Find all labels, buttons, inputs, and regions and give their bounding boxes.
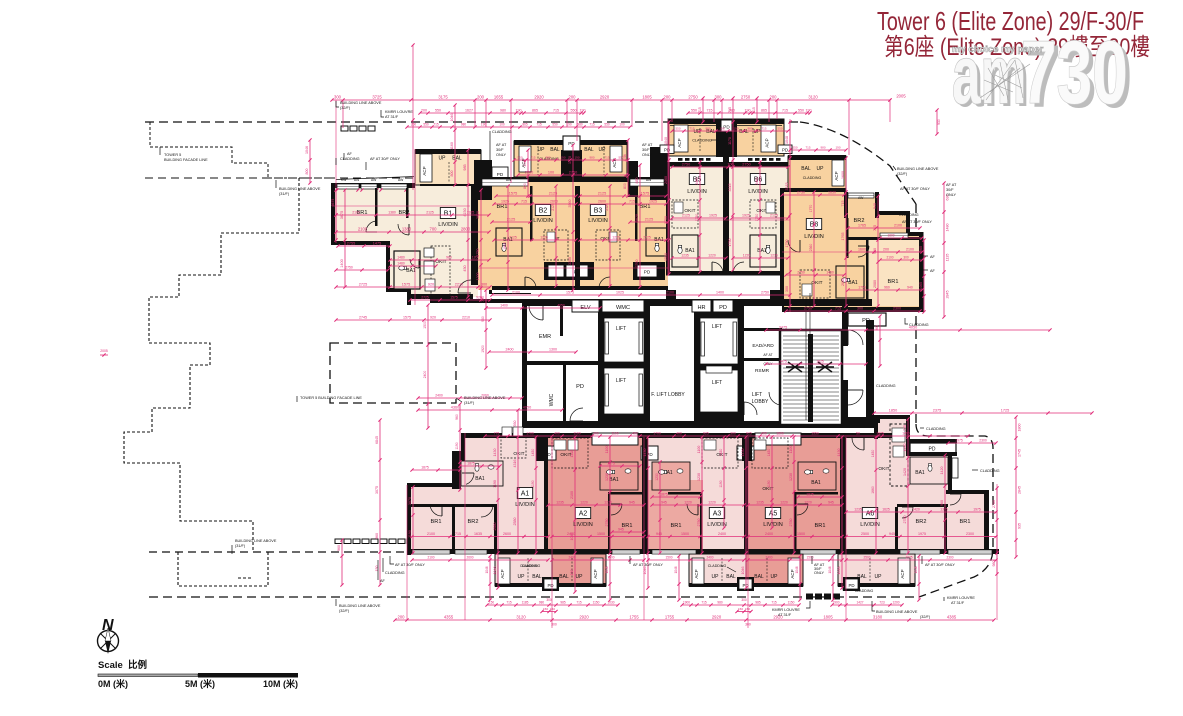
svg-text:2750: 2750 [797, 271, 805, 275]
svg-text:150: 150 [738, 607, 743, 611]
svg-text:1925: 1925 [503, 242, 507, 250]
svg-text:700: 700 [430, 227, 438, 232]
svg-text:(31/F): (31/F) [279, 192, 290, 196]
svg-text:1230: 1230 [789, 473, 793, 481]
svg-text:1925: 1925 [709, 214, 717, 218]
svg-text:比例: 比例 [128, 659, 147, 671]
svg-text:AF AT: AF AT [642, 143, 653, 147]
svg-text:2125: 2125 [598, 192, 606, 196]
svg-text:2125: 2125 [605, 203, 609, 211]
svg-text:1170: 1170 [728, 137, 732, 145]
svg-text:BA1: BA1 [757, 248, 767, 254]
svg-text:1575: 1575 [450, 296, 458, 300]
svg-text:960: 960 [884, 286, 890, 290]
svg-text:2400: 2400 [435, 394, 443, 398]
svg-text:4316: 4316 [513, 460, 517, 468]
svg-text:2750: 2750 [345, 266, 353, 270]
svg-text:A1: A1 [521, 491, 530, 498]
svg-text:AF AT 30/F ONLY: AF AT 30/F ONLY [633, 563, 663, 567]
svg-text:550: 550 [552, 123, 558, 127]
svg-text:550: 550 [691, 109, 697, 113]
svg-text:2500: 2500 [863, 556, 870, 560]
svg-text:3075: 3075 [375, 486, 379, 494]
svg-text:2920: 2920 [534, 95, 544, 100]
svg-text:1430: 1430 [493, 449, 497, 457]
svg-text:CLADDING: CLADDING [708, 564, 727, 568]
svg-text:300: 300 [857, 307, 863, 311]
svg-text:800: 800 [450, 171, 454, 177]
svg-text:WMC: WMC [549, 393, 555, 406]
svg-text:1235: 1235 [556, 501, 564, 505]
svg-text:1040: 1040 [664, 137, 668, 145]
svg-text:1135: 1135 [946, 254, 950, 262]
svg-text:1420: 1420 [912, 508, 920, 512]
svg-text:1230: 1230 [697, 473, 701, 481]
svg-text:BA1: BA1 [811, 480, 821, 486]
svg-text:AF AT 30/F ONLY: AF AT 30/F ONLY [902, 220, 932, 224]
svg-text:OKIT: OKIT [811, 280, 822, 286]
svg-text:800: 800 [623, 183, 627, 189]
svg-text:3315: 3315 [728, 184, 732, 192]
svg-text:2125: 2125 [645, 218, 653, 222]
svg-text:715: 715 [903, 425, 907, 431]
svg-text:BUILDING FACADE LINE: BUILDING FACADE LINE [164, 158, 208, 162]
svg-text:715: 715 [771, 601, 777, 605]
svg-text:UP: UP [875, 574, 883, 580]
svg-text:775: 775 [494, 432, 500, 436]
svg-text:1400: 1400 [716, 291, 724, 295]
svg-text:AF: AF [930, 269, 936, 273]
svg-text:KW: KW [341, 178, 347, 182]
svg-text:2300: 2300 [979, 439, 987, 443]
svg-text:150: 150 [550, 607, 555, 611]
svg-text:940: 940 [873, 203, 877, 209]
svg-text:925: 925 [746, 432, 752, 436]
svg-text:Scale: Scale [98, 660, 123, 671]
svg-text:BA1: BA1 [475, 476, 485, 482]
svg-text:1635: 1635 [474, 532, 482, 536]
svg-text:1765: 1765 [858, 286, 866, 290]
svg-text:PD: PD [576, 384, 584, 390]
svg-text:2500: 2500 [861, 532, 869, 536]
svg-text:2750: 2750 [804, 307, 812, 311]
svg-text:980: 980 [461, 123, 467, 127]
svg-text:BA1: BA1 [609, 477, 619, 483]
svg-text:980: 980 [589, 156, 594, 160]
svg-text:2755: 2755 [347, 242, 355, 246]
svg-text:715: 715 [701, 601, 707, 605]
svg-text:ACP: ACP [422, 166, 427, 175]
svg-text:300: 300 [334, 95, 342, 100]
svg-text:1875: 1875 [806, 493, 814, 497]
svg-text:200: 200 [421, 109, 427, 113]
svg-text:0M (米): 0M (米) [98, 678, 128, 689]
svg-text:A5: A5 [769, 511, 778, 518]
svg-text:CLADDING: CLADDING [803, 176, 822, 180]
svg-text:2780: 2780 [789, 519, 793, 527]
svg-text:1765: 1765 [841, 233, 845, 241]
svg-text:1220: 1220 [780, 501, 788, 505]
svg-text:(31/F): (31/F) [464, 401, 475, 405]
svg-text:715: 715 [536, 123, 542, 127]
svg-text:715: 715 [689, 127, 694, 131]
svg-text:1790: 1790 [785, 240, 789, 248]
svg-text:945: 945 [656, 532, 662, 536]
svg-text:2375: 2375 [933, 409, 941, 413]
svg-text:1046: 1046 [741, 567, 745, 575]
svg-text:AW: AW [506, 178, 512, 182]
svg-text:1100: 1100 [605, 446, 609, 454]
svg-text:AW: AW [398, 178, 404, 182]
svg-text:1048: 1048 [785, 136, 789, 144]
svg-text:1600: 1600 [841, 171, 845, 179]
svg-text:UP: UP [538, 147, 546, 153]
svg-text:5M (米): 5M (米) [185, 678, 215, 689]
svg-text:1430: 1430 [837, 449, 841, 457]
svg-text:ACP: ACP [834, 171, 839, 180]
svg-text:1755: 1755 [665, 615, 675, 620]
svg-text:3475: 3475 [779, 326, 787, 330]
svg-text:1745: 1745 [1018, 449, 1022, 457]
svg-text:200: 200 [477, 95, 485, 100]
svg-text:3300: 3300 [568, 257, 572, 265]
svg-text:3120: 3120 [808, 95, 818, 100]
svg-text:BAL: BAL [550, 147, 560, 153]
svg-text:300: 300 [903, 256, 909, 260]
svg-text:2400: 2400 [718, 532, 726, 536]
svg-text:1150: 1150 [593, 601, 600, 605]
svg-text:550: 550 [618, 156, 623, 160]
svg-text:980: 980 [705, 127, 710, 131]
svg-text:1100: 1100 [573, 432, 580, 436]
svg-text:1750: 1750 [664, 216, 668, 224]
svg-text:945: 945 [828, 501, 834, 505]
svg-text:CLADDING: CLADDING [692, 139, 712, 143]
svg-text:1800: 1800 [1018, 424, 1022, 432]
svg-text:1400: 1400 [340, 259, 344, 267]
svg-text:2100: 2100 [886, 256, 893, 260]
svg-text:(32/F): (32/F) [339, 609, 350, 613]
svg-text:OKIT: OKIT [878, 466, 889, 472]
svg-text:6845: 6845 [375, 436, 379, 444]
svg-text:BAL: BAL [754, 574, 764, 580]
svg-text:2005: 2005 [100, 349, 108, 353]
svg-text:UP: UP [439, 156, 447, 162]
svg-text:1700: 1700 [653, 432, 661, 436]
svg-text:730: 730 [1021, 24, 1128, 123]
svg-text:1220: 1220 [580, 501, 588, 505]
svg-text:CLADDING: CLADDING [980, 469, 1000, 473]
svg-text:1500: 1500 [681, 532, 689, 536]
svg-text:1490: 1490 [902, 432, 910, 436]
svg-text:1575: 1575 [403, 316, 411, 320]
svg-text:190: 190 [733, 127, 738, 131]
svg-text:ONLY: ONLY [496, 153, 507, 157]
svg-text:2080: 2080 [873, 280, 877, 288]
svg-text:2750: 2750 [742, 163, 750, 167]
svg-text:LIFT: LIFT [616, 378, 626, 384]
svg-text:2400: 2400 [567, 532, 575, 536]
svg-text:2210: 2210 [462, 316, 470, 320]
svg-text:300: 300 [741, 598, 747, 602]
svg-text:800: 800 [523, 183, 527, 189]
svg-text:3725: 3725 [372, 95, 382, 100]
svg-text:960: 960 [481, 316, 485, 322]
svg-text:1500: 1500 [597, 532, 605, 536]
svg-text:BA1: BA1 [406, 268, 416, 274]
svg-text:1900: 1900 [832, 601, 839, 605]
svg-text:LIV/DIN: LIV/DIN [687, 189, 707, 195]
svg-text:1850: 1850 [889, 409, 897, 413]
svg-text:1550: 1550 [811, 432, 819, 436]
svg-text:4050: 4050 [557, 304, 565, 308]
svg-text:(32/F): (32/F) [920, 615, 931, 619]
svg-text:1046: 1046 [305, 146, 309, 154]
svg-text:4050: 4050 [523, 406, 531, 410]
svg-text:1800: 1800 [776, 432, 784, 436]
svg-text:2600: 2600 [466, 556, 473, 560]
svg-text:2745: 2745 [359, 316, 367, 320]
svg-text:WMC: WMC [616, 305, 630, 311]
svg-text:1975: 1975 [918, 532, 926, 536]
svg-text:BR1: BR1 [815, 523, 826, 529]
svg-text:980: 980 [717, 601, 723, 605]
svg-text:1190: 1190 [531, 480, 535, 487]
svg-text:865: 865 [522, 123, 528, 127]
svg-text:1630: 1630 [828, 191, 836, 195]
svg-text:1200: 1200 [472, 256, 480, 260]
svg-text:100: 100 [548, 171, 554, 175]
svg-text:B3: B3 [594, 208, 603, 215]
svg-text:BUILDING LINE ABOVE: BUILDING LINE ABOVE [464, 396, 506, 400]
svg-text:920: 920 [430, 316, 436, 320]
svg-text:1920: 1920 [481, 345, 485, 353]
svg-text:980: 980 [992, 561, 996, 567]
svg-text:1046: 1046 [450, 114, 454, 122]
svg-text:A2: A2 [579, 511, 588, 518]
svg-text:AT 31/F: AT 31/F [951, 601, 965, 605]
svg-text:F. LIFT LOBBY: F. LIFT LOBBY [651, 392, 685, 398]
svg-text:2125: 2125 [643, 236, 651, 240]
svg-text:BAL: BAL [452, 156, 462, 162]
svg-text:1430: 1430 [767, 449, 771, 457]
svg-text:BUILDING LINE ABOVE: BUILDING LINE ABOVE [340, 101, 382, 105]
svg-text:1575: 1575 [641, 192, 649, 196]
svg-text:2210: 2210 [455, 283, 463, 287]
svg-text:190: 190 [560, 156, 565, 160]
svg-text:2750: 2750 [688, 95, 698, 100]
svg-text:LIV/DIN: LIV/DIN [438, 222, 458, 228]
svg-text:2100: 2100 [427, 556, 434, 560]
svg-text:1430: 1430 [531, 449, 535, 457]
svg-text:CLADDING: CLADDING [899, 213, 919, 217]
svg-text:550: 550 [604, 123, 610, 127]
svg-text:2750: 2750 [525, 171, 533, 175]
svg-text:300: 300 [546, 598, 552, 602]
svg-text:1046: 1046 [485, 566, 489, 573]
svg-text:2005: 2005 [896, 94, 906, 99]
svg-text:1046: 1046 [795, 566, 799, 573]
svg-text:ACP: ACP [765, 138, 770, 147]
svg-text:715: 715 [752, 107, 756, 113]
svg-text:865: 865 [532, 109, 538, 113]
svg-text:2600: 2600 [550, 200, 558, 204]
svg-text:1300: 1300 [549, 348, 557, 352]
svg-text:10M (米): 10M (米) [263, 678, 298, 689]
svg-text:1235: 1235 [756, 501, 764, 505]
svg-text:1627: 1627 [465, 109, 473, 113]
svg-text:980: 980 [747, 127, 752, 131]
svg-text:AF: AF [347, 152, 353, 156]
svg-text:190: 190 [806, 109, 812, 113]
svg-text:(31/F): (31/F) [235, 544, 246, 548]
svg-text:1230: 1230 [903, 444, 907, 452]
svg-text:B2: B2 [539, 208, 548, 215]
svg-text:1500: 1500 [665, 556, 672, 560]
svg-text:550: 550 [792, 146, 797, 150]
svg-text:BUILDING LINE ABOVE: BUILDING LINE ABOVE [279, 187, 321, 191]
svg-text:3180: 3180 [873, 615, 883, 620]
svg-text:1100: 1100 [697, 446, 701, 454]
svg-text:1400: 1400 [500, 304, 508, 308]
svg-text:1430: 1430 [741, 449, 745, 457]
svg-text:1770: 1770 [809, 205, 813, 213]
svg-text:980: 980 [820, 146, 825, 150]
svg-text:1875: 1875 [421, 466, 429, 470]
svg-text:1046: 1046 [828, 566, 832, 573]
svg-text:2100: 2100 [427, 532, 435, 536]
svg-text:RSMR: RSMR [755, 368, 770, 374]
svg-text:3475: 3475 [779, 360, 787, 364]
svg-text:CLADDING: CLADDING [492, 130, 512, 134]
svg-text:1500: 1500 [423, 321, 427, 329]
svg-text:1500: 1500 [806, 556, 813, 560]
svg-text:BR1: BR1 [960, 519, 971, 525]
svg-text:OKIT: OKIT [513, 451, 524, 457]
svg-text:1046: 1046 [674, 566, 678, 573]
svg-text:3070: 3070 [408, 497, 412, 505]
svg-text:LIFT: LIFT [712, 324, 722, 330]
svg-text:1900: 1900 [683, 601, 690, 605]
svg-text:1190: 1190 [455, 442, 459, 449]
svg-text:1427: 1427 [856, 601, 863, 605]
svg-text:AT 31/F: AT 31/F [385, 115, 399, 119]
svg-text:BR2: BR2 [468, 519, 479, 525]
svg-text:1600: 1600 [887, 234, 894, 238]
svg-text:2780: 2780 [992, 500, 996, 508]
svg-text:TOWER 5: TOWER 5 [164, 153, 181, 157]
svg-text:ACP: ACP [593, 569, 598, 578]
svg-text:1660: 1660 [871, 486, 875, 494]
svg-text:4385: 4385 [947, 615, 957, 620]
svg-text:1420: 1420 [903, 468, 907, 476]
svg-text:AT 31/F: AT 31/F [778, 613, 792, 617]
svg-text:1046: 1046 [914, 566, 918, 573]
svg-text:1046: 1046 [643, 567, 647, 575]
svg-text:BAL: BAL [584, 147, 594, 153]
svg-text:1480: 1480 [397, 256, 405, 260]
svg-text:2845: 2845 [1018, 486, 1022, 494]
svg-text:400: 400 [632, 432, 638, 436]
svg-text:1805: 1805 [823, 615, 833, 620]
svg-text:50: 50 [856, 432, 860, 436]
svg-text:CLADDING: CLADDING [340, 157, 360, 161]
svg-text:30/F: 30/F [642, 148, 650, 152]
svg-text:980: 980 [446, 256, 452, 260]
svg-text:AW: AW [646, 178, 652, 182]
svg-text:1150: 1150 [788, 601, 795, 605]
svg-text:1925: 1925 [742, 214, 750, 218]
svg-text:2100: 2100 [352, 211, 360, 215]
svg-text:715: 715 [506, 601, 512, 605]
svg-text:3175: 3175 [438, 95, 448, 100]
svg-text:UP: UP [817, 166, 825, 172]
svg-text:2750: 2750 [797, 191, 805, 195]
svg-text:2460: 2460 [755, 177, 759, 185]
svg-text:LIFT: LIFT [616, 326, 626, 332]
svg-text:LIV/DIN: LIV/DIN [860, 522, 880, 528]
svg-text:LIV/DIN: LIV/DIN [748, 189, 768, 195]
svg-text:(32/F): (32/F) [340, 106, 351, 110]
svg-text:ACP: ACP [677, 138, 682, 147]
svg-text:LIV/DIN: LIV/DIN [533, 218, 553, 224]
svg-text:945: 945 [889, 532, 895, 536]
svg-text:300: 300 [481, 283, 487, 287]
svg-text:AF AT: AF AT [763, 353, 772, 357]
svg-text:715: 715 [707, 109, 713, 113]
svg-text:200: 200 [664, 95, 672, 100]
svg-text:2125: 2125 [770, 214, 778, 218]
svg-text:1925: 1925 [467, 211, 475, 215]
svg-text:1975: 1975 [905, 556, 912, 560]
svg-text:1190: 1190 [767, 480, 771, 487]
svg-text:1975: 1975 [973, 508, 981, 512]
svg-text:200: 200 [569, 95, 577, 100]
svg-text:EMR: EMR [539, 334, 551, 340]
svg-text:AW: AW [354, 178, 360, 182]
svg-text:715: 715 [589, 123, 595, 127]
svg-text:PD: PD [644, 270, 651, 275]
svg-text:1925: 1925 [649, 200, 657, 204]
svg-text:935: 935 [1018, 523, 1022, 529]
svg-text:150: 150 [375, 566, 379, 572]
svg-text:1475: 1475 [373, 242, 381, 246]
svg-text:LIFT: LIFT [712, 380, 722, 386]
svg-text:1220: 1220 [708, 254, 716, 258]
svg-text:BR1: BR1 [431, 519, 442, 525]
svg-text:AW: AW [858, 196, 864, 200]
svg-text:1160: 1160 [450, 142, 454, 150]
svg-text:2780: 2780 [697, 519, 701, 527]
svg-text:30/F: 30/F [496, 148, 504, 152]
svg-text:AF: AF [380, 579, 386, 583]
svg-text:2800: 2800 [461, 227, 471, 232]
svg-text:BR1: BR1 [497, 204, 508, 210]
svg-text:190: 190 [574, 156, 579, 160]
svg-text:ONLY: ONLY [814, 571, 825, 575]
svg-text:400: 400 [554, 432, 560, 436]
svg-text:BAL: BAL [801, 166, 811, 172]
svg-text:2920: 2920 [712, 615, 722, 620]
svg-text:1220: 1220 [708, 501, 716, 505]
svg-text:1755: 1755 [629, 615, 639, 620]
svg-text:2080: 2080 [841, 278, 845, 286]
svg-text:1430: 1430 [719, 449, 723, 457]
svg-text:LIFT: LIFT [752, 392, 762, 398]
svg-text:985: 985 [560, 601, 566, 605]
svg-text:300: 300 [715, 95, 723, 100]
svg-text:2460: 2460 [664, 176, 668, 184]
